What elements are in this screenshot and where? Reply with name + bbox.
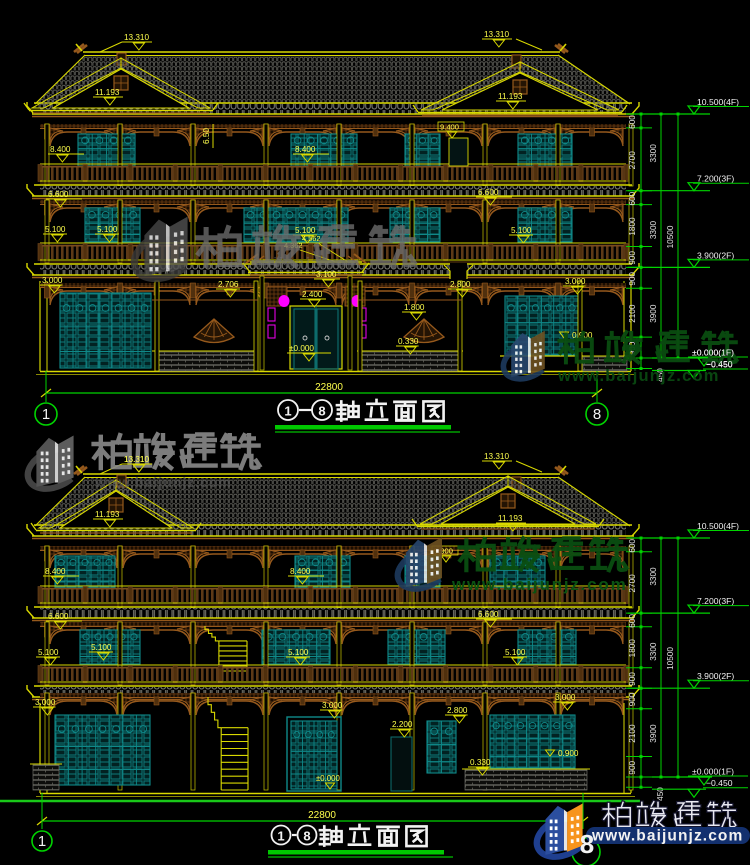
svg-text:3300: 3300 [649, 144, 658, 163]
svg-text:8.400: 8.400 [50, 145, 71, 154]
svg-text:900: 900 [628, 672, 637, 686]
svg-text:5.100: 5.100 [288, 648, 309, 657]
svg-text:600: 600 [628, 539, 637, 553]
svg-text:4.562: 4.562 [302, 234, 321, 243]
svg-text:1800: 1800 [628, 217, 637, 236]
svg-text:3900: 3900 [649, 304, 658, 323]
svg-text:−0.450: −0.450 [706, 778, 733, 788]
svg-text:6.50: 6.50 [202, 128, 211, 144]
svg-text:2100: 2100 [628, 724, 637, 743]
svg-text:11.193: 11.193 [95, 88, 120, 97]
svg-text:6.600: 6.600 [478, 188, 499, 197]
svg-text:9.400: 9.400 [440, 123, 459, 132]
svg-text:3.900(2F): 3.900(2F) [697, 250, 734, 260]
svg-text:www.baijunjz.com: www.baijunjz.com [451, 575, 628, 594]
svg-text:2.400: 2.400 [302, 290, 323, 299]
svg-text:13.310: 13.310 [124, 455, 149, 464]
svg-text:11.193: 11.193 [498, 92, 523, 101]
svg-text:900: 900 [628, 760, 637, 774]
svg-text:600: 600 [628, 191, 637, 205]
svg-text:±0.000: ±0.000 [289, 344, 314, 353]
svg-text:6.600: 6.600 [48, 190, 69, 199]
svg-text:8.400: 8.400 [295, 145, 316, 154]
svg-text:2.800: 2.800 [450, 280, 471, 289]
svg-text:0.330: 0.330 [398, 337, 419, 346]
svg-text:6.600: 6.600 [478, 610, 499, 619]
svg-text:10500: 10500 [666, 225, 675, 248]
svg-text:900: 900 [628, 272, 637, 286]
svg-text:8.400: 8.400 [290, 567, 311, 576]
svg-text:3300: 3300 [649, 220, 658, 239]
svg-text:5.100: 5.100 [505, 648, 526, 657]
svg-text:0.900: 0.900 [558, 749, 579, 758]
svg-text:1: 1 [277, 829, 284, 844]
svg-text:10.500(4F): 10.500(4F) [697, 97, 739, 107]
svg-text:8: 8 [580, 829, 594, 859]
svg-text:600: 600 [628, 614, 637, 628]
svg-text:8: 8 [303, 829, 310, 844]
svg-text:2.706: 2.706 [218, 280, 239, 289]
svg-text:1800: 1800 [628, 639, 637, 658]
svg-text:0.330: 0.330 [470, 758, 491, 767]
svg-text:3.000: 3.000 [42, 276, 63, 285]
svg-text:−0.450: −0.450 [706, 359, 733, 369]
svg-text:www.baijunjz.com: www.baijunjz.com [207, 255, 361, 272]
svg-text:3300: 3300 [649, 567, 658, 586]
svg-text:3.900(2F): 3.900(2F) [697, 671, 734, 681]
svg-text:±0.000: ±0.000 [316, 774, 340, 783]
svg-text:1.800: 1.800 [404, 303, 425, 312]
svg-text:10.500(4F): 10.500(4F) [697, 521, 739, 531]
svg-text:2700: 2700 [628, 151, 637, 170]
svg-text:www.baijunjz.com: www.baijunjz.com [557, 367, 720, 385]
svg-text:11.193: 11.193 [95, 510, 120, 519]
svg-text:1: 1 [38, 833, 46, 850]
svg-text:1: 1 [284, 404, 291, 419]
svg-text:±0.000(1F): ±0.000(1F) [692, 348, 734, 358]
svg-text:1: 1 [42, 406, 50, 423]
svg-text:2700: 2700 [628, 574, 637, 593]
svg-text:5.100: 5.100 [97, 225, 118, 234]
svg-text:2100: 2100 [628, 304, 637, 323]
svg-text:3.000: 3.000 [322, 701, 343, 710]
svg-text:600: 600 [628, 115, 637, 129]
svg-text:11.193: 11.193 [498, 514, 523, 523]
svg-text:5.100: 5.100 [38, 648, 59, 657]
svg-text:7.200(3F): 7.200(3F) [697, 596, 734, 606]
svg-text:7.200(3F): 7.200(3F) [697, 174, 734, 184]
svg-text:www.baijunjz.com: www.baijunjz.com [94, 474, 232, 490]
svg-text:3300: 3300 [649, 642, 658, 661]
svg-text:8: 8 [318, 404, 325, 419]
svg-text:900: 900 [628, 251, 637, 265]
svg-text:2.200: 2.200 [392, 720, 413, 729]
svg-text:5.100: 5.100 [91, 643, 112, 652]
svg-text:±0.000(1F): ±0.000(1F) [692, 767, 734, 777]
svg-text:8.400: 8.400 [45, 567, 66, 576]
svg-text:6.600: 6.600 [48, 612, 69, 621]
svg-text:13.310: 13.310 [484, 30, 509, 39]
svg-text:3.000: 3.000 [555, 693, 576, 702]
svg-text:13.310: 13.310 [484, 452, 509, 461]
svg-text:5.100: 5.100 [511, 226, 532, 235]
svg-text:3.000: 3.000 [35, 698, 56, 707]
svg-text:10500: 10500 [666, 647, 675, 670]
svg-text:22800: 22800 [315, 382, 343, 393]
svg-text:900: 900 [628, 692, 637, 706]
svg-text:www.baijunjz.com: www.baijunjz.com [591, 828, 743, 845]
svg-text:5.100: 5.100 [45, 225, 66, 234]
svg-text:8: 8 [593, 406, 601, 423]
svg-text:13.310: 13.310 [124, 33, 149, 42]
svg-text:22800: 22800 [308, 810, 336, 821]
svg-text:3.000: 3.000 [565, 277, 586, 286]
svg-text:3900: 3900 [649, 724, 658, 743]
svg-text:2.800: 2.800 [447, 706, 468, 715]
